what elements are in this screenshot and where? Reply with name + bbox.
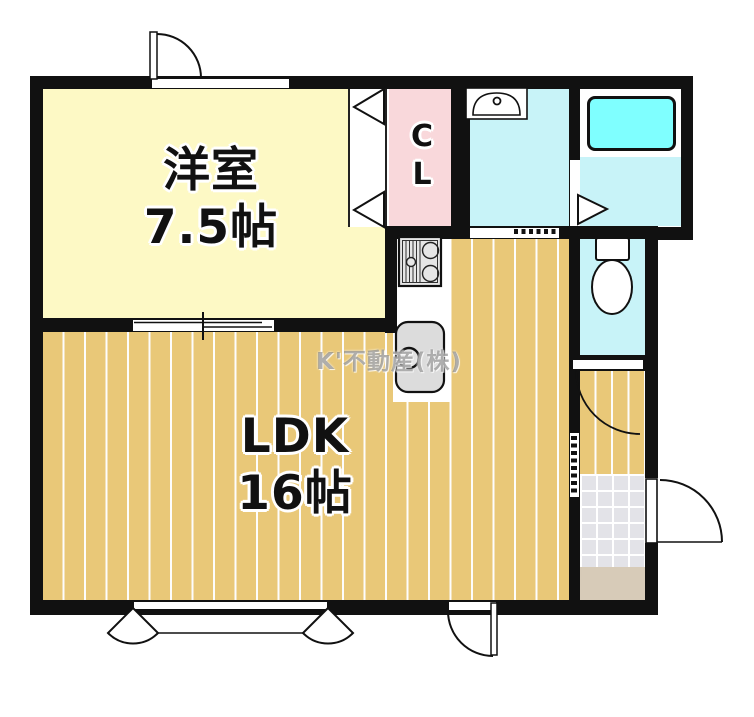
toilet-icon [592, 238, 632, 314]
bathroom-door-marker [578, 195, 607, 224]
western-room-name: 洋室 [86, 142, 336, 199]
sliding-door-symbol [134, 312, 272, 340]
floor-plan: 洋室 7.5帖 LDK 16帖 C L K'不動産(株) [0, 0, 754, 717]
room-label-closet: C L [404, 118, 440, 194]
ldk-exterior-door-swing [448, 603, 497, 656]
ldk-name: LDK [180, 408, 410, 465]
room-label-ldk: LDK 16帖 [180, 408, 410, 522]
closet-label-l: L [404, 156, 440, 194]
front-door-swing [646, 479, 722, 543]
closet-label-c: C [404, 118, 440, 156]
western-room-size: 7.5帖 [86, 199, 336, 256]
vanity-sink-icon [466, 88, 527, 119]
entry-door-swing [150, 32, 201, 79]
ldk-size: 16帖 [180, 465, 410, 522]
gas-stove-icon [399, 237, 441, 286]
toilet-door-swing [576, 370, 640, 434]
double-swing-door [108, 608, 353, 644]
watermark: K'不動産(株) [316, 342, 462, 376]
closet-folding-door-markers [354, 89, 384, 227]
room-label-western: 洋室 7.5帖 [86, 142, 336, 256]
